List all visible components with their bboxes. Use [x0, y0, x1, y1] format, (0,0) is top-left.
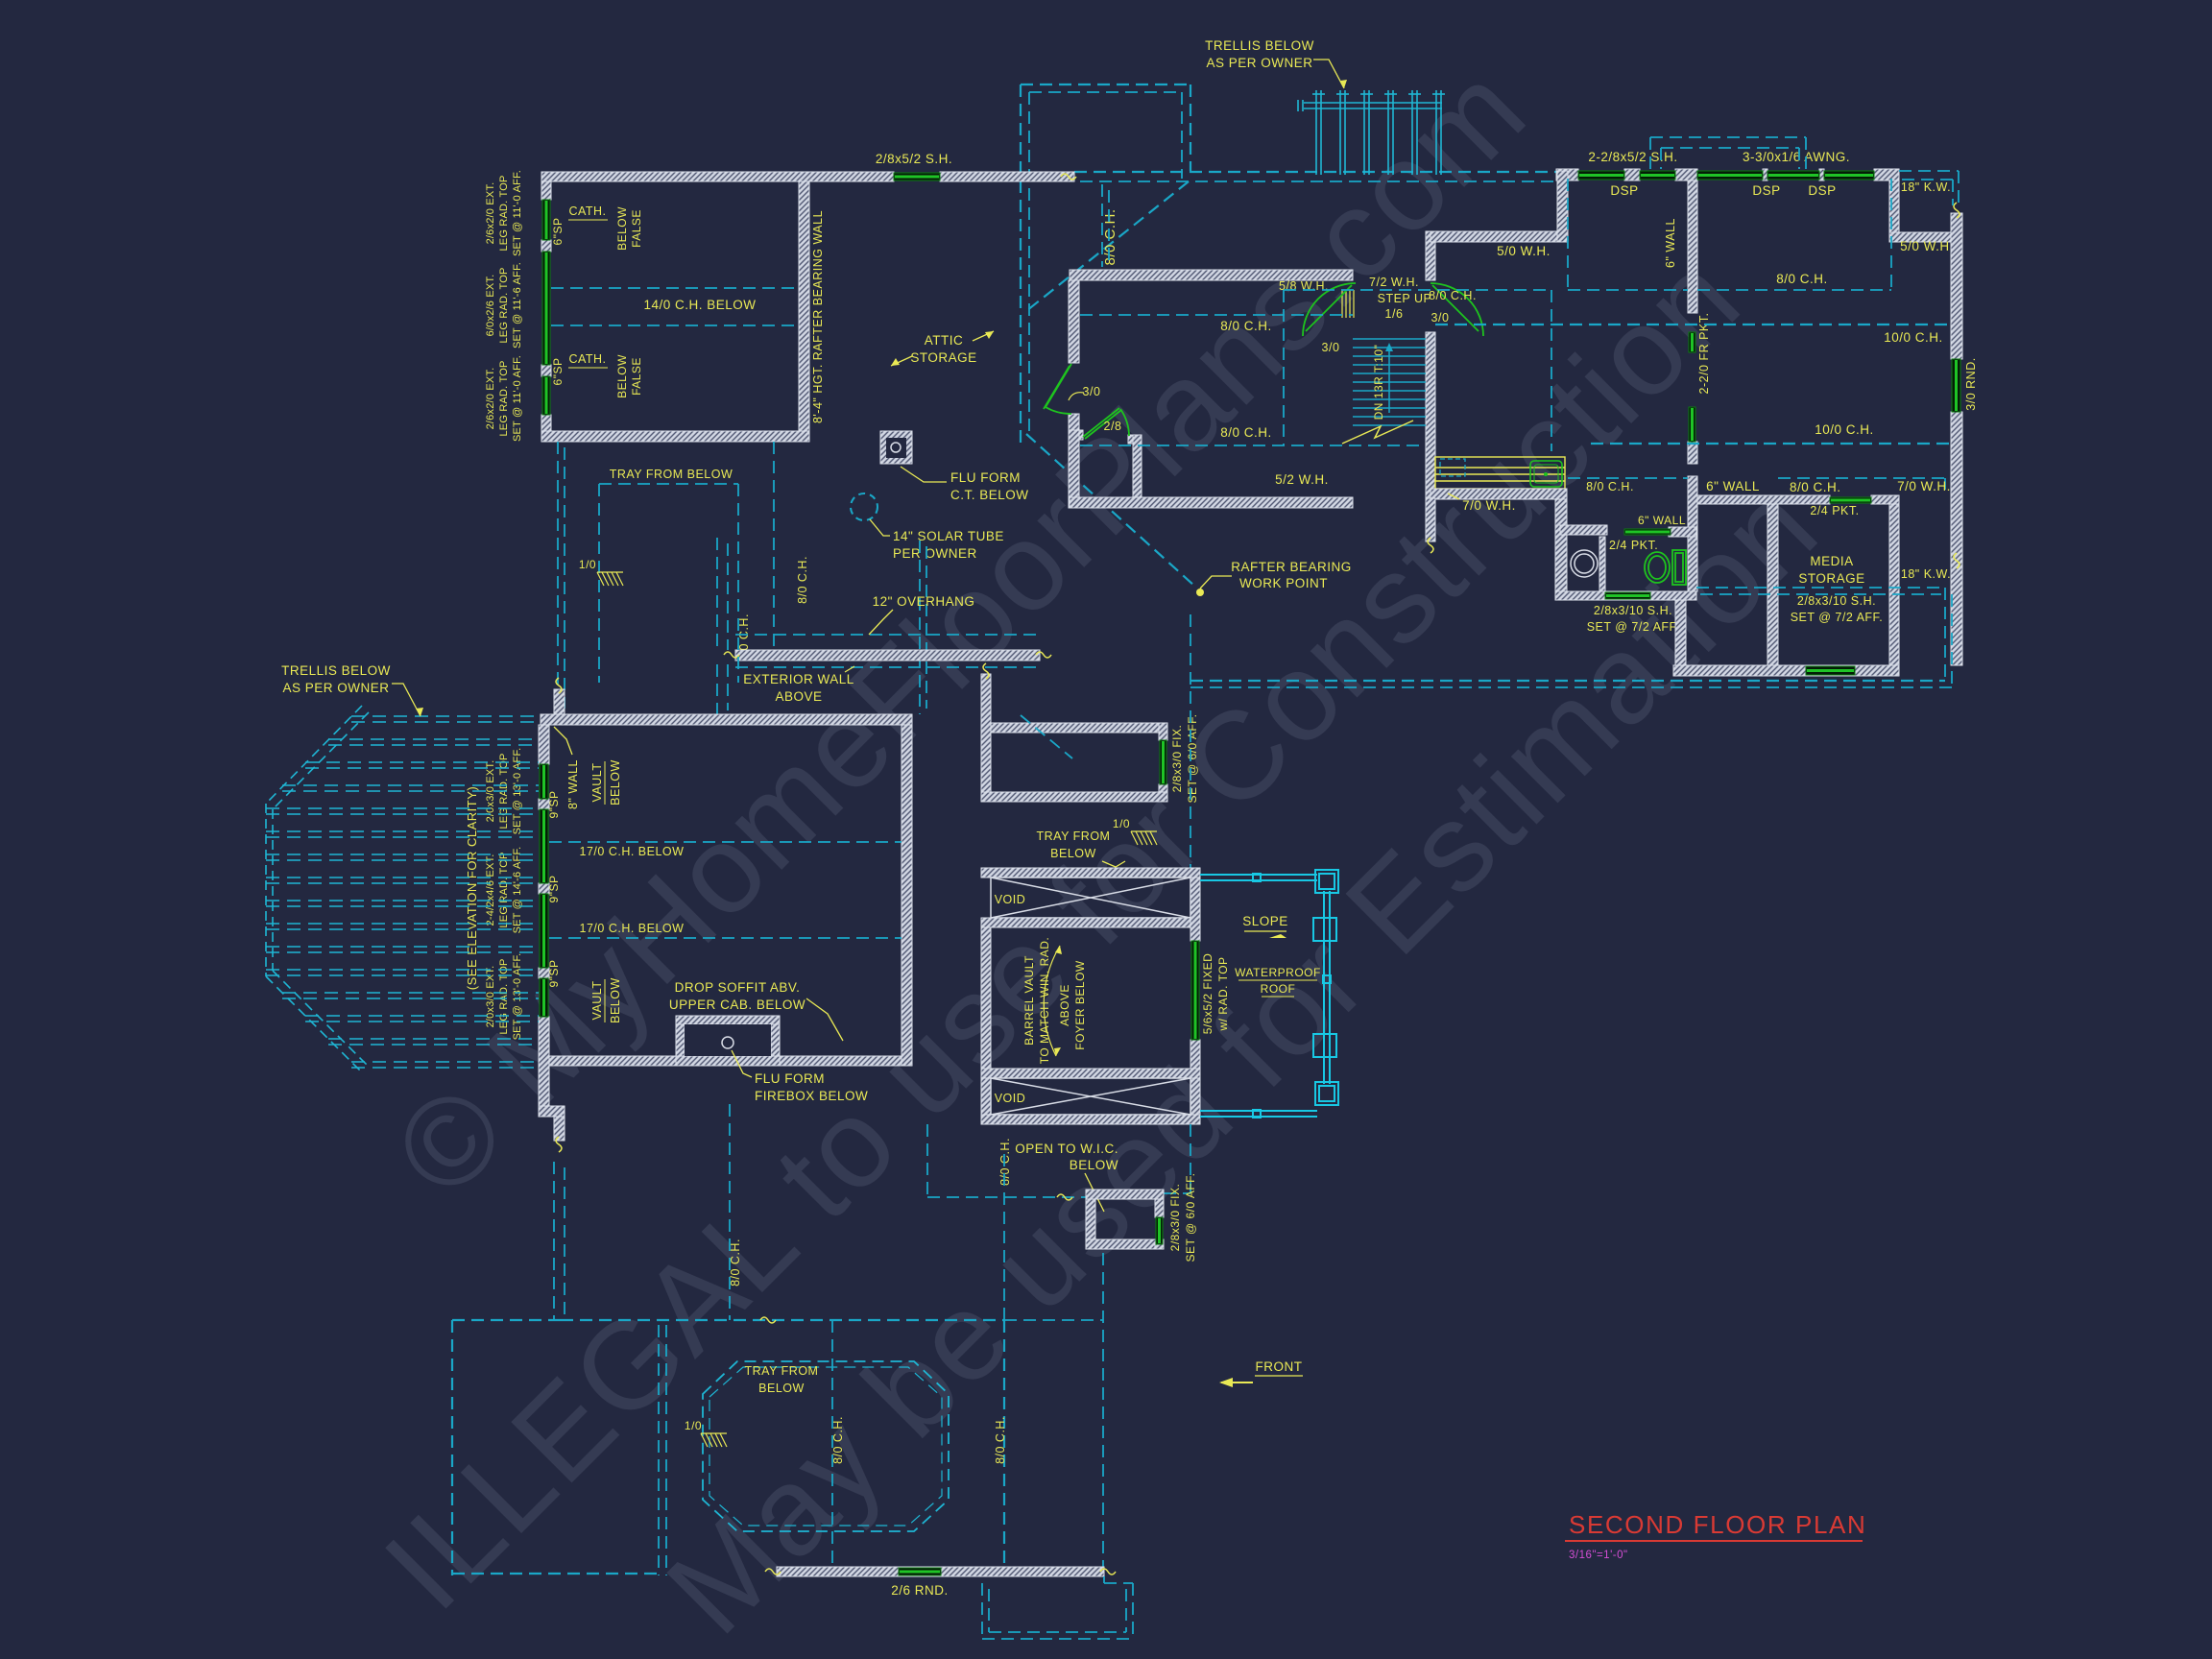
svg-text:3-3/0x1/6 AWNG.: 3-3/0x1/6 AWNG.: [1743, 150, 1850, 164]
svg-text:SET @ 7/2 AFF.: SET @ 7/2 AFF.: [1587, 620, 1680, 634]
svg-text:2/8x3/0 FIX.: 2/8x3/0 FIX.: [1168, 1184, 1182, 1252]
svg-text:8/0 C.H.: 8/0 C.H.: [1102, 208, 1118, 265]
svg-text:18" K.W.: 18" K.W.: [1901, 567, 1951, 581]
svg-text:12" OVERHANG: 12" OVERHANG: [873, 594, 975, 609]
svg-text:ABOVE: ABOVE: [1058, 984, 1071, 1026]
svg-text:8/0 C.H.: 8/0 C.H.: [1220, 425, 1272, 440]
svg-text:AS PER OWNER: AS PER OWNER: [282, 681, 389, 695]
svg-text:TRAY FROM: TRAY FROM: [745, 1364, 819, 1378]
svg-text:2/8x3/0 FIX.: 2/8x3/0 FIX.: [1170, 725, 1184, 793]
svg-text:1/0: 1/0: [1113, 817, 1130, 830]
svg-text:8/0 C.H.: 8/0 C.H.: [729, 1238, 742, 1286]
svg-text:8" WALL: 8" WALL: [566, 759, 580, 809]
svg-text:17/0 C.H. BELOW: 17/0 C.H. BELOW: [580, 922, 685, 935]
svg-text:AS PER OWNER: AS PER OWNER: [1206, 56, 1312, 70]
svg-text:WORK POINT: WORK POINT: [1239, 576, 1328, 590]
svg-text:STORAGE: STORAGE: [1798, 571, 1864, 586]
svg-text:2/6x2/0 EXT.: 2/6x2/0 EXT.: [485, 368, 496, 430]
svg-text:VOID: VOID: [995, 1092, 1026, 1105]
svg-text:TO MATCH WIN. RAD.: TO MATCH WIN. RAD.: [1038, 937, 1051, 1065]
svg-text:2/6x2/0 EXT.: 2/6x2/0 EXT.: [485, 182, 496, 245]
svg-text:8/0 C.H.: 8/0 C.H.: [1586, 480, 1634, 493]
svg-text:6" WALL: 6" WALL: [1664, 218, 1677, 268]
svg-text:FRONT: FRONT: [1256, 1359, 1303, 1374]
svg-text:PER OWNER: PER OWNER: [893, 546, 977, 561]
svg-text:6"SP: 6"SP: [551, 218, 565, 246]
svg-text:TRELLIS BELOW: TRELLIS BELOW: [281, 663, 391, 678]
svg-text:3/0 RND.: 3/0 RND.: [1964, 357, 1978, 410]
svg-text:LEG RAD. TOP: LEG RAD. TOP: [498, 360, 510, 436]
svg-text:BELOW: BELOW: [1050, 847, 1096, 860]
svg-text:RAFTER BEARING: RAFTER BEARING: [1231, 560, 1352, 574]
svg-text:8/0 C.H.: 8/0 C.H.: [1429, 289, 1477, 302]
svg-text:BELOW: BELOW: [1070, 1158, 1118, 1172]
svg-text:DSP: DSP: [1808, 183, 1836, 198]
svg-text:8/0 C.H.: 8/0 C.H.: [831, 1416, 845, 1464]
svg-text:10/0 C.H.: 10/0 C.H.: [1884, 330, 1943, 345]
svg-text:FLU FORM: FLU FORM: [950, 470, 1021, 485]
svg-text:ATTIC: ATTIC: [925, 333, 964, 348]
svg-text:2/6 RND.: 2/6 RND.: [891, 1583, 949, 1598]
svg-text:6" WALL: 6" WALL: [1638, 514, 1686, 527]
svg-text:5/0 W.H.: 5/0 W.H.: [1900, 239, 1954, 253]
svg-text:6"SP: 6"SP: [551, 358, 565, 386]
svg-text:8/0 C.H.: 8/0 C.H.: [1220, 319, 1272, 333]
svg-text:C.T. BELOW: C.T. BELOW: [950, 488, 1029, 502]
svg-text:ABOVE: ABOVE: [775, 689, 822, 704]
svg-text:14" SOLAR TUBE: 14" SOLAR TUBE: [893, 529, 1004, 543]
svg-text:LEG RAD. TOP: LEG RAD. TOP: [498, 852, 510, 927]
svg-text:5/0 W.H.: 5/0 W.H.: [1497, 244, 1551, 258]
svg-text:3/0: 3/0: [1322, 341, 1340, 354]
svg-text:1/0: 1/0: [685, 1419, 702, 1432]
svg-text:UPPER CAB. BELOW: UPPER CAB. BELOW: [669, 998, 805, 1012]
svg-text:BELOW: BELOW: [758, 1382, 805, 1395]
svg-text:SET @ 14'-6 AFF.: SET @ 14'-6 AFF.: [512, 847, 523, 934]
svg-text:9"SP: 9"SP: [547, 791, 561, 819]
svg-text:7/0 W.H.: 7/0 W.H.: [1462, 498, 1516, 513]
svg-text:SET @ 6/0 AFF.: SET @ 6/0 AFF.: [1186, 714, 1199, 804]
svg-text:2/8x5/2 S.H.: 2/8x5/2 S.H.: [876, 152, 952, 166]
svg-text:STEP UP: STEP UP: [1378, 292, 1432, 305]
svg-text:SET @ 13'-0 AFF.: SET @ 13'-0 AFF.: [512, 953, 523, 1041]
svg-text:DROP SOFFIT ABV.: DROP SOFFIT ABV.: [675, 980, 801, 995]
svg-text:1/6: 1/6: [1385, 307, 1404, 321]
svg-text:3/0: 3/0: [1431, 311, 1450, 325]
svg-text:3/0: 3/0: [1083, 385, 1101, 398]
svg-text:(SEE ELEVATION FOR CLARITY): (SEE ELEVATION FOR CLARITY): [465, 786, 479, 990]
svg-text:BELOW: BELOW: [609, 977, 622, 1023]
svg-text:14/0 C.H. BELOW: 14/0 C.H. BELOW: [643, 298, 756, 312]
svg-text:8/0 C.H.: 8/0 C.H.: [994, 1416, 1007, 1464]
svg-text:VAULT: VAULT: [590, 763, 604, 803]
svg-text:2/4 PKT.: 2/4 PKT.: [1810, 504, 1859, 517]
svg-text:OPEN TO W.I.C.: OPEN TO W.I.C.: [1015, 1142, 1118, 1156]
svg-text:FLU FORM: FLU FORM: [755, 1071, 825, 1086]
svg-text:BELOW: BELOW: [609, 759, 622, 805]
svg-text:STORAGE: STORAGE: [910, 350, 976, 365]
svg-text:EXTERIOR WALL: EXTERIOR WALL: [743, 672, 854, 686]
svg-text:8'-4" HGT. RAFTER BEARING WALL: 8'-4" HGT. RAFTER BEARING WALL: [811, 210, 825, 423]
svg-text:17/0 C.H. BELOW: 17/0 C.H. BELOW: [580, 845, 685, 858]
svg-text:8/0 C.H.: 8/0 C.H.: [1790, 480, 1841, 494]
svg-text:TRAY FROM: TRAY FROM: [1037, 829, 1111, 843]
svg-text:SET @ 7/2 AFF.: SET @ 7/2 AFF.: [1791, 611, 1884, 624]
svg-text:DSP: DSP: [1610, 183, 1638, 198]
svg-text:7/0 W.H.: 7/0 W.H.: [1897, 479, 1951, 493]
svg-text:6/0x2/6 EXT.: 6/0x2/6 EXT.: [485, 275, 496, 337]
svg-text:MEDIA: MEDIA: [1810, 554, 1853, 568]
svg-text:SET @ 6/0 AFF.: SET @ 6/0 AFF.: [1184, 1173, 1197, 1262]
svg-text:FIREBOX BELOW: FIREBOX BELOW: [755, 1089, 868, 1103]
svg-text:1/0: 1/0: [579, 558, 596, 571]
svg-text:2-2/8x5/2 S.H.: 2-2/8x5/2 S.H.: [1588, 150, 1677, 164]
svg-text:FALSE: FALSE: [630, 209, 643, 248]
svg-text:8/0 C.H.: 8/0 C.H.: [998, 1138, 1012, 1186]
svg-text:8/0 C.H.: 8/0 C.H.: [1776, 272, 1828, 286]
svg-text:ROOF: ROOF: [1261, 982, 1296, 996]
svg-text:DSP: DSP: [1752, 183, 1780, 198]
svg-text:TRAY FROM BELOW: TRAY FROM BELOW: [610, 468, 733, 481]
svg-text:CATH.: CATH.: [568, 204, 606, 218]
svg-text:SET @ 11'-0 AFF.: SET @ 11'-0 AFF.: [512, 170, 523, 256]
svg-text:WATERPROOF: WATERPROOF: [1235, 966, 1321, 979]
svg-text:SLOPE: SLOPE: [1242, 914, 1288, 928]
svg-text:CATH.: CATH.: [568, 352, 606, 366]
svg-text:BARREL VAULT: BARREL VAULT: [1022, 955, 1036, 1046]
svg-text:FOYER BELOW: FOYER BELOW: [1073, 960, 1087, 1050]
svg-text:LEG RAD. TOP: LEG RAD. TOP: [498, 267, 510, 343]
svg-text:9"SP: 9"SP: [547, 876, 561, 903]
svg-text:3/16"=1'-0": 3/16"=1'-0": [1569, 1550, 1628, 1561]
svg-text:SET @ 11'-6 AFF.: SET @ 11'-6 AFF.: [512, 262, 523, 349]
svg-text:18" K.W.: 18" K.W.: [1901, 180, 1951, 194]
svg-text:6" WALL: 6" WALL: [1706, 479, 1760, 493]
svg-text:5/6x5/2 FIXED: 5/6x5/2 FIXED: [1201, 953, 1214, 1035]
svg-text:7/2 W.H.: 7/2 W.H.: [1369, 276, 1419, 289]
svg-text:9"SP: 9"SP: [547, 960, 561, 988]
svg-text:5/2 W.H.: 5/2 W.H.: [1275, 472, 1329, 487]
svg-text:VOID: VOID: [995, 893, 1026, 906]
svg-text:FALSE: FALSE: [630, 357, 643, 396]
svg-text:BELOW: BELOW: [615, 206, 629, 251]
svg-text:w/ RAD. TOP: w/ RAD. TOP: [1216, 956, 1230, 1031]
svg-text:SECOND FLOOR PLAN: SECOND FLOOR PLAN: [1569, 1510, 1866, 1539]
svg-text:2/8: 2/8: [1104, 420, 1122, 433]
svg-text:10/0 C.H.: 10/0 C.H.: [1815, 422, 1874, 437]
svg-text:VAULT: VAULT: [590, 981, 604, 1021]
svg-text:TRELLIS BELOW: TRELLIS BELOW: [1205, 38, 1314, 53]
svg-text:DN 13R T:10": DN 13R T:10": [1372, 345, 1385, 421]
svg-text:2-4/2x4/6 EXT.: 2-4/2x4/6 EXT.: [485, 854, 496, 926]
svg-text:8/0 C.H.: 8/0 C.H.: [796, 556, 809, 604]
svg-text:BELOW: BELOW: [615, 354, 629, 398]
svg-text:2/8x3/10 S.H.: 2/8x3/10 S.H.: [1797, 594, 1876, 608]
svg-text:LEG RAD. TOP: LEG RAD. TOP: [498, 175, 510, 251]
svg-text:2/4 PKT.: 2/4 PKT.: [1609, 539, 1658, 552]
svg-text:SET @ 11'-0 AFF.: SET @ 11'-0 AFF.: [512, 355, 523, 442]
svg-text:2/8x3/10 S.H.: 2/8x3/10 S.H.: [1594, 604, 1672, 617]
